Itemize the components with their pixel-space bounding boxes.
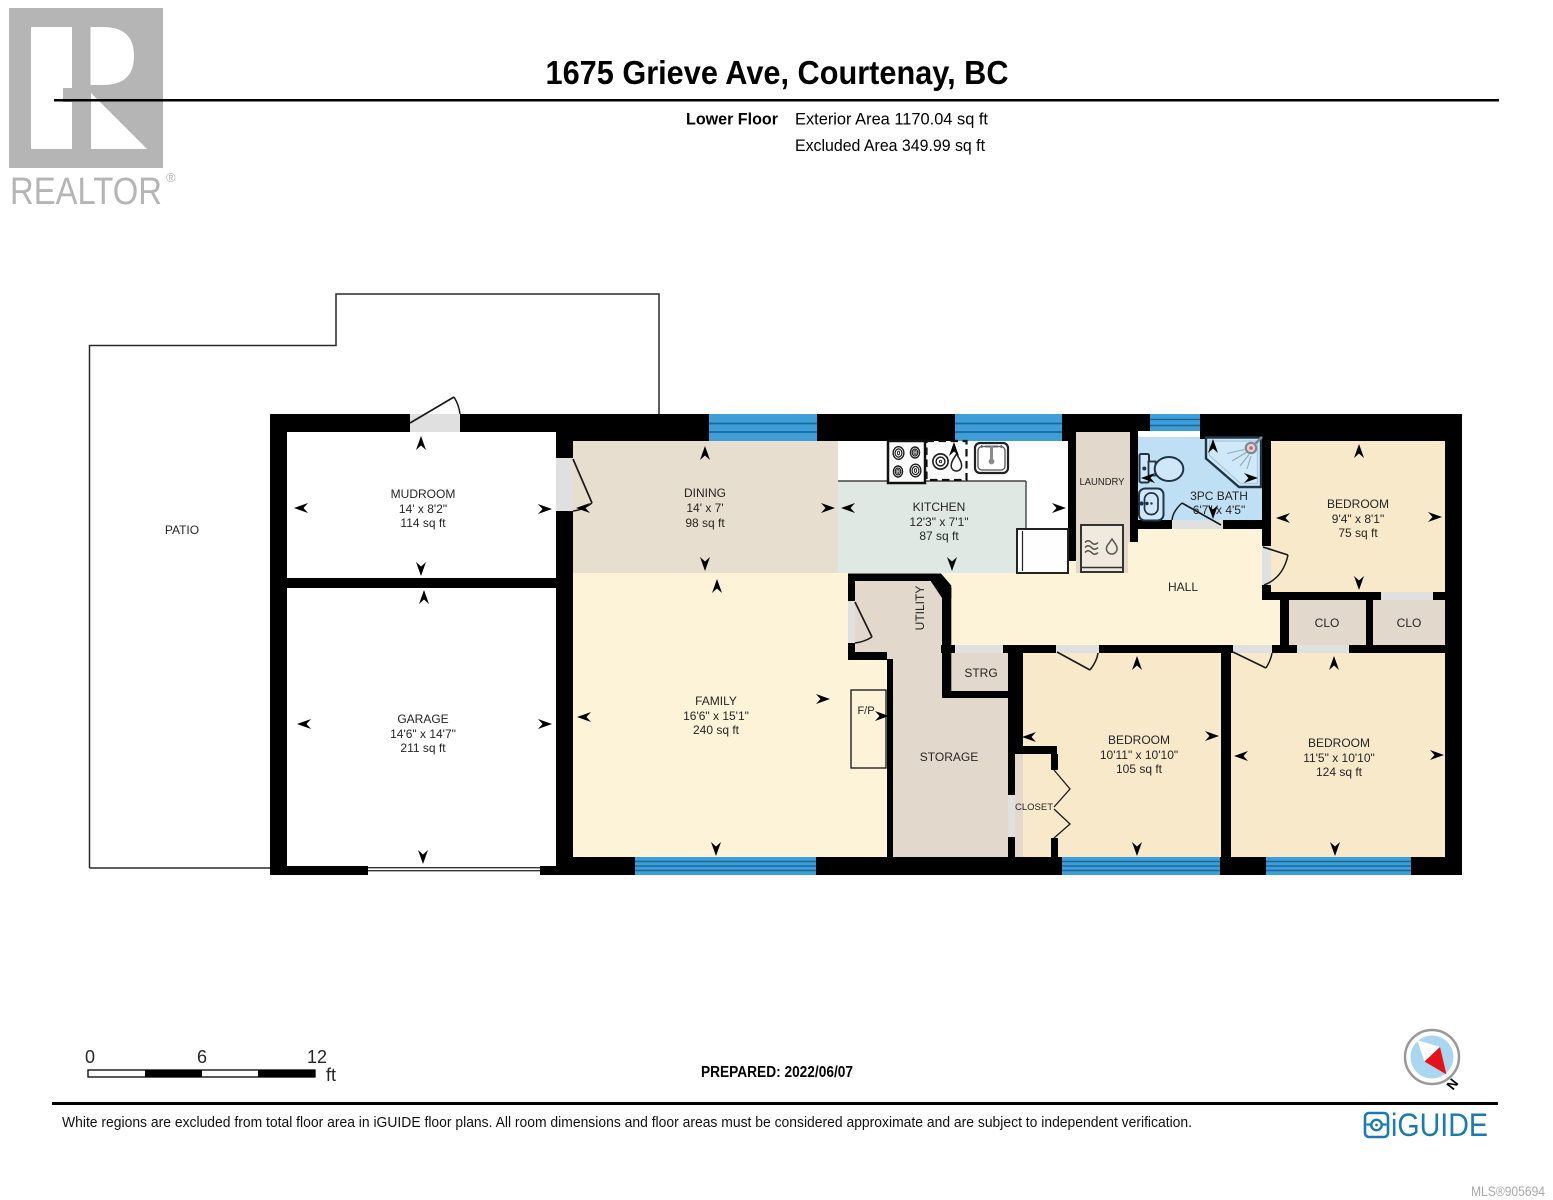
svg-text:LAUNDRY: LAUNDRY [1080, 476, 1125, 488]
svg-text:105 sq ft: 105 sq ft [1116, 762, 1163, 776]
svg-text:PATIO: PATIO [165, 523, 199, 537]
svg-text:MUDROOM: MUDROOM [391, 487, 456, 501]
svg-text:CLO: CLO [1315, 616, 1340, 630]
svg-text:124 sq ft: 124 sq ft [1316, 765, 1363, 779]
svg-text:PREPARED: 2022/06/07: PREPARED: 2022/06/07 [701, 1064, 853, 1081]
svg-text:MLS®905694: MLS®905694 [1471, 1183, 1545, 1199]
svg-text:11'5" x 10'10": 11'5" x 10'10" [1303, 751, 1375, 765]
svg-text:75 sq ft: 75 sq ft [1338, 526, 1378, 540]
svg-text:BEDROOM: BEDROOM [1108, 733, 1170, 747]
svg-text:87 sq ft: 87 sq ft [919, 529, 959, 543]
svg-text:STRG: STRG [964, 666, 997, 680]
svg-text:240 sq ft: 240 sq ft [693, 723, 740, 737]
svg-text:CLOSET: CLOSET [1015, 802, 1053, 813]
svg-text:BEDROOM: BEDROOM [1308, 736, 1370, 750]
svg-text:HALL: HALL [1168, 580, 1198, 594]
svg-text:ft: ft [326, 1065, 336, 1085]
svg-text:BEDROOM: BEDROOM [1327, 497, 1389, 511]
svg-text:10'11" x 10'10": 10'11" x 10'10" [1100, 748, 1178, 762]
svg-text:1675 Grieve Ave, Courtenay, BC: 1675 Grieve Ave, Courtenay, BC [546, 54, 1009, 91]
svg-text:6: 6 [197, 1047, 207, 1067]
svg-text:16'6" x 15'1": 16'6" x 15'1" [683, 709, 749, 723]
svg-text:®: ® [166, 170, 176, 185]
svg-text:98 sq ft: 98 sq ft [685, 516, 725, 530]
svg-text:12: 12 [307, 1047, 327, 1067]
svg-text:GARAGE: GARAGE [397, 712, 448, 726]
svg-text:6'7" x 4'5": 6'7" x 4'5" [1193, 503, 1245, 517]
svg-text:9'4" x 8'1": 9'4" x 8'1" [1332, 512, 1384, 526]
svg-text:KITCHEN: KITCHEN [913, 500, 966, 514]
svg-text:UTILITY: UTILITY [913, 586, 927, 631]
svg-text:14' x 7': 14' x 7' [686, 501, 723, 515]
svg-text:Lower Floor: Lower Floor [686, 111, 779, 129]
svg-text:Excluded Area 349.99 sq ft: Excluded Area 349.99 sq ft [795, 137, 985, 155]
svg-text:0: 0 [85, 1047, 95, 1067]
svg-text:14'6" x 14'7": 14'6" x 14'7" [390, 727, 456, 741]
svg-text:14' x 8'2": 14' x 8'2" [399, 502, 447, 516]
svg-text:FAMILY: FAMILY [695, 694, 737, 708]
svg-text:211 sq ft: 211 sq ft [400, 741, 446, 755]
svg-text:DINING: DINING [684, 486, 726, 500]
svg-text:12'3" x 7'1": 12'3" x 7'1" [909, 515, 968, 529]
svg-text:REALTOR: REALTOR [10, 171, 162, 213]
svg-text:White regions are excluded fro: White regions are excluded from total fl… [62, 1114, 1192, 1131]
svg-text:114 sq ft: 114 sq ft [400, 516, 446, 530]
svg-text:iGUIDE: iGUIDE [1391, 1107, 1488, 1143]
svg-text:CLO: CLO [1397, 616, 1422, 630]
svg-text:STORAGE: STORAGE [920, 750, 978, 764]
svg-text:Exterior Area 1170.04 sq ft: Exterior Area 1170.04 sq ft [795, 111, 988, 129]
svg-text:F/P: F/P [857, 705, 874, 717]
svg-text:3PC BATH: 3PC BATH [1190, 489, 1248, 503]
